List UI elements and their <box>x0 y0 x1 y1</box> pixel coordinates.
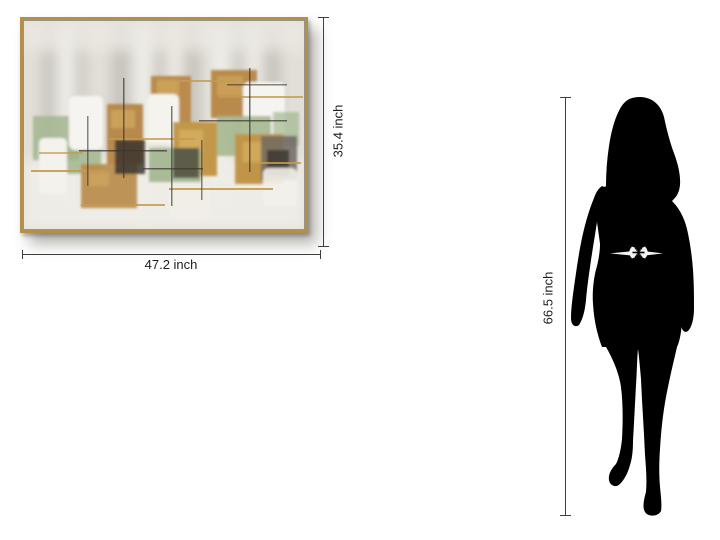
artwork-width-label: 47.2 inch <box>145 258 198 271</box>
artwork-width-line-right-cap <box>320 250 321 259</box>
artwork-height-line-bottom-cap <box>318 246 329 247</box>
artwork-frame <box>20 17 308 233</box>
artwork-width-line <box>22 254 321 255</box>
figure-height-label: 66.5 inch <box>542 272 555 325</box>
artwork-height-line <box>323 17 324 247</box>
artwork-height-line-top-cap <box>318 17 329 18</box>
artwork-height-label: 35.4 inch <box>332 105 345 158</box>
artwork-width-line-left-cap <box>22 250 23 259</box>
size-comparison-graphic: 35.4 inch 47.2 inch 66.5 inch <box>0 0 720 540</box>
woman-silhouette <box>566 96 706 517</box>
abstract-painting-canvas <box>23 20 305 230</box>
